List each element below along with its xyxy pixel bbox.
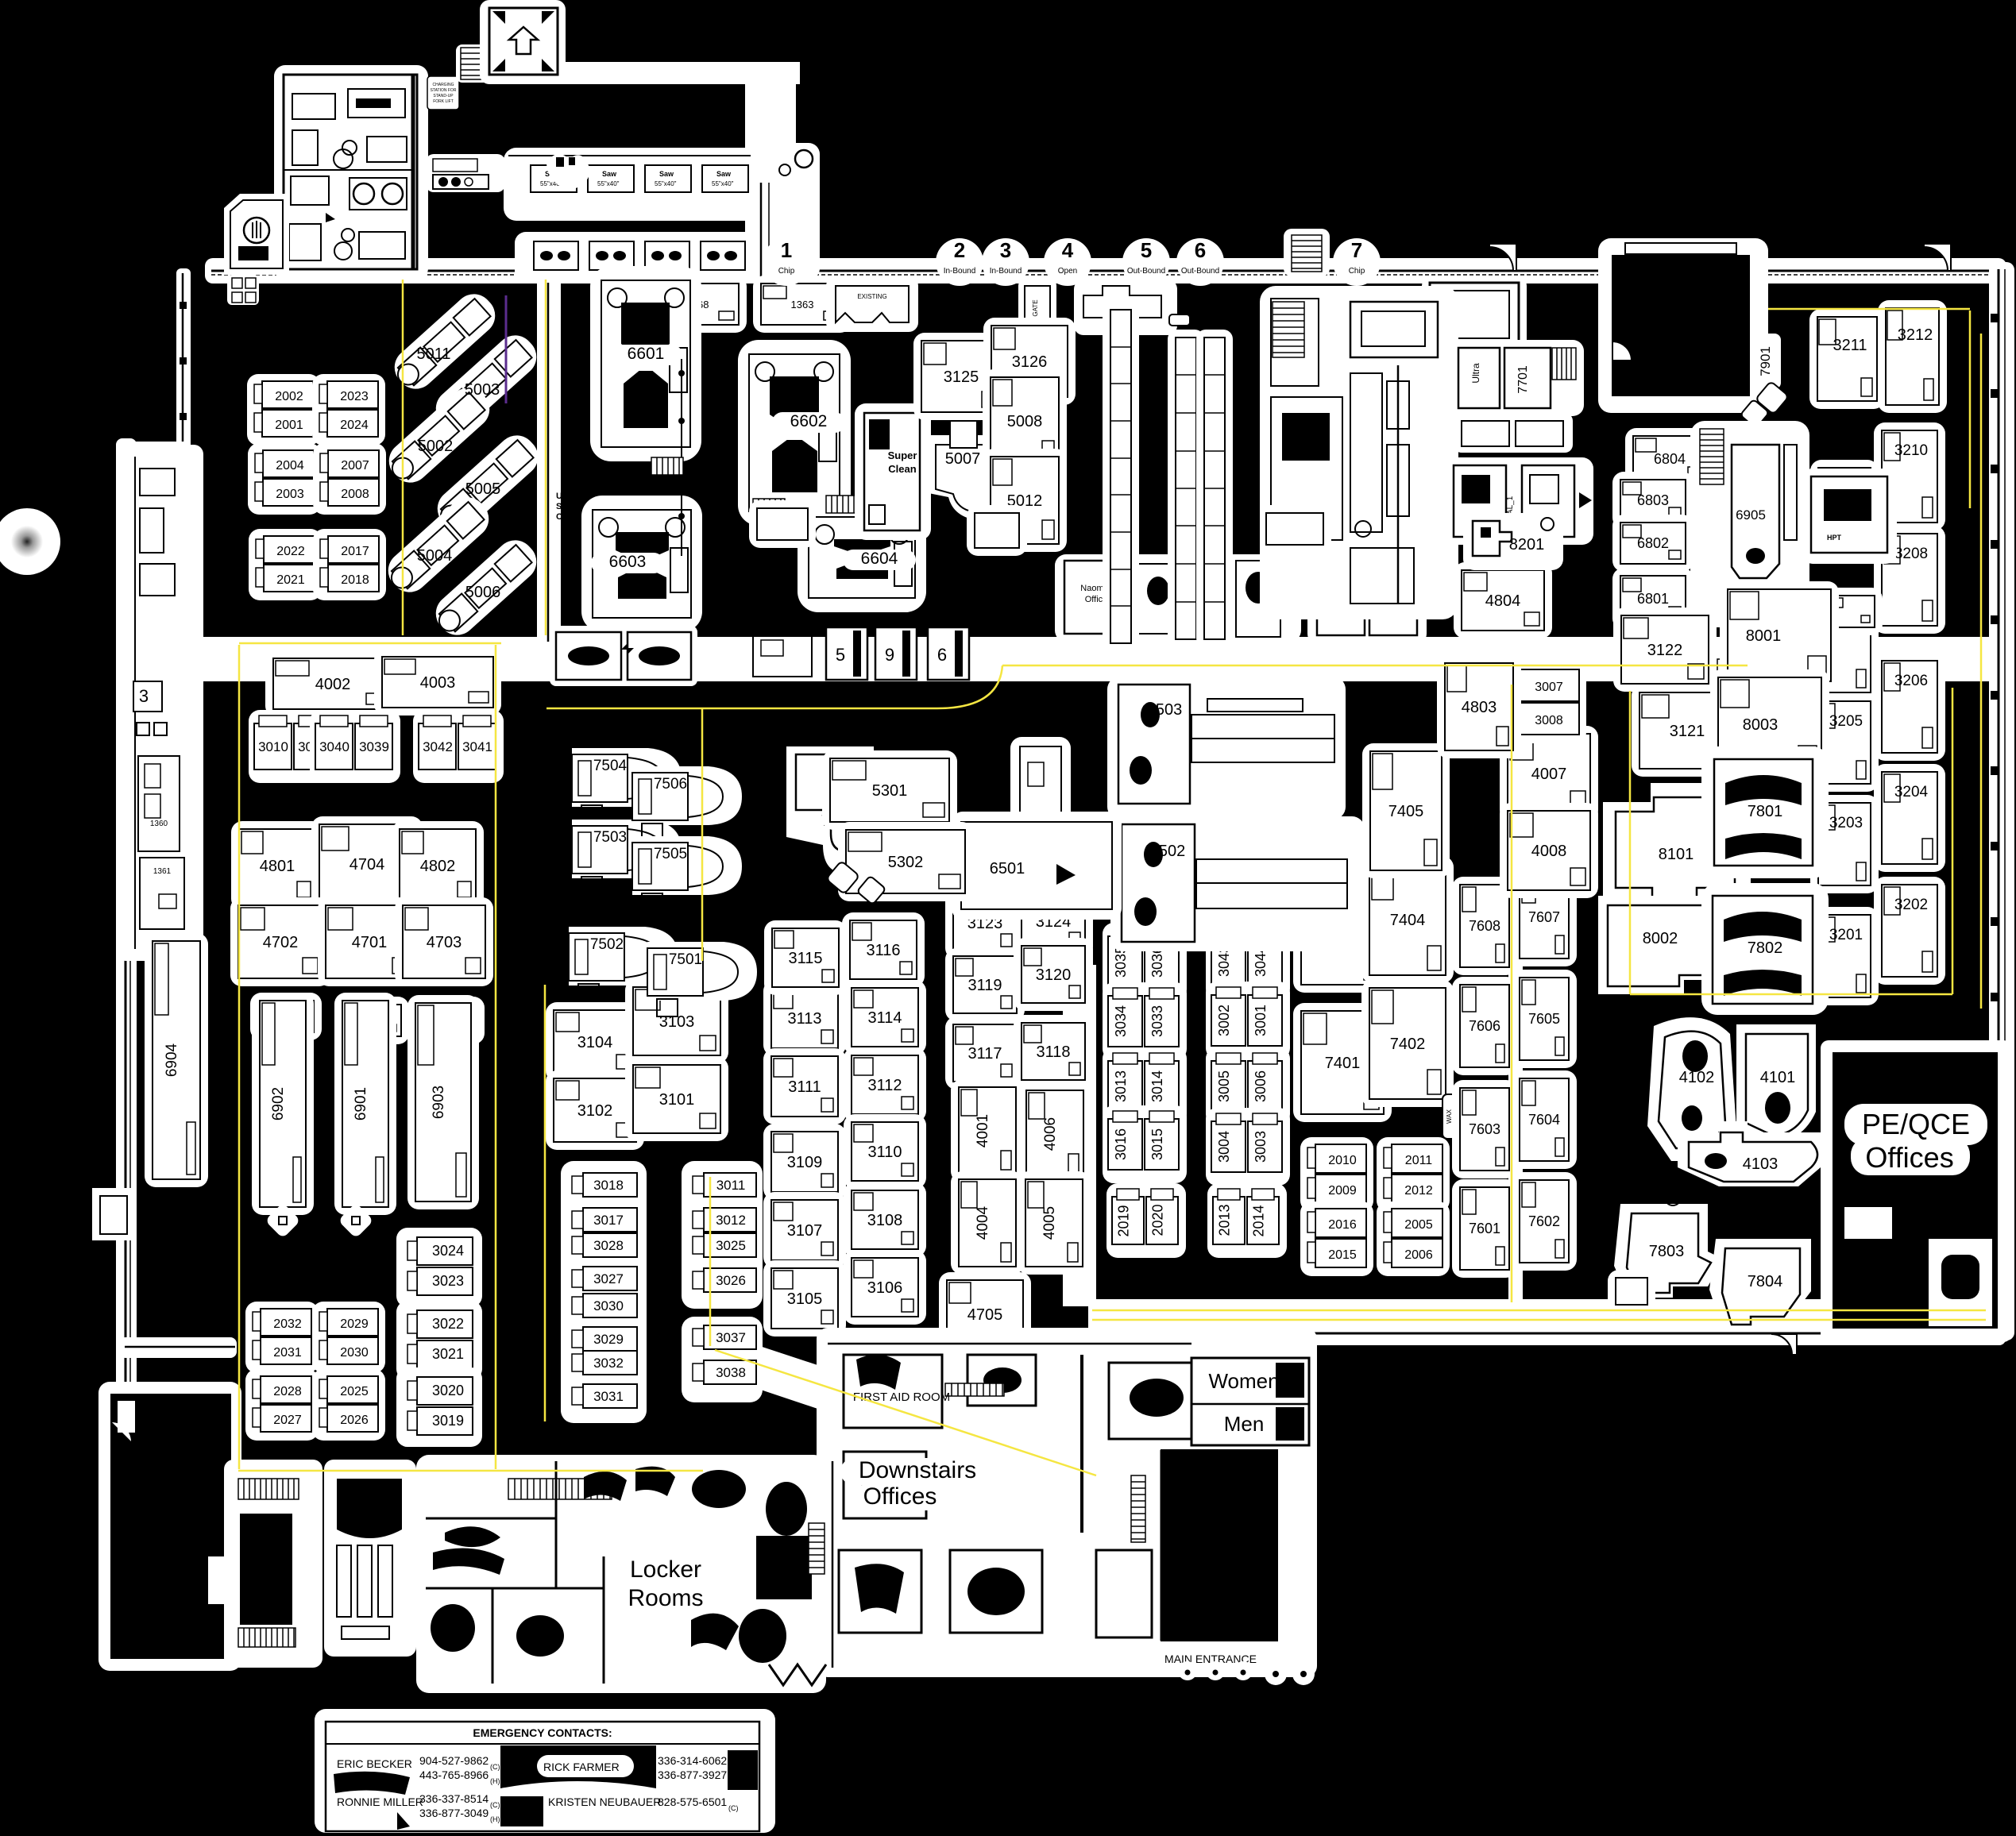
svg-text:3106: 3106 (867, 1279, 903, 1297)
svg-text:Men: Men (1224, 1412, 1265, 1436)
svg-text:3210: 3210 (1894, 442, 1928, 459)
svg-text:3030: 3030 (593, 1298, 624, 1313)
svg-text:6: 6 (1195, 238, 1206, 262)
svg-text:3204: 3204 (1894, 784, 1929, 800)
svg-text:2020: 2020 (1150, 1204, 1166, 1236)
svg-text:4002: 4002 (315, 676, 351, 693)
svg-text:4801: 4801 (260, 858, 295, 875)
svg-text:3029: 3029 (593, 1332, 624, 1347)
svg-text:3205: 3205 (1829, 713, 1863, 730)
svg-text:6602: 6602 (790, 412, 828, 430)
svg-text:2022: 2022 (276, 545, 305, 558)
svg-text:3026: 3026 (716, 1273, 746, 1288)
svg-text:6903: 6903 (431, 1086, 447, 1119)
svg-text:7601: 7601 (1469, 1221, 1500, 1236)
svg-text:336-877-3049: 336-877-3049 (419, 1807, 489, 1819)
svg-text:4008: 4008 (1531, 843, 1567, 860)
svg-text:2024: 2024 (340, 418, 369, 432)
svg-text:5003: 5003 (465, 381, 500, 399)
svg-text:STAND-UP: STAND-UP (433, 94, 454, 98)
svg-text:EXISTING: EXISTING (857, 293, 886, 300)
svg-text:3115: 3115 (788, 950, 822, 967)
svg-text:2023: 2023 (340, 390, 369, 403)
svg-text:PE/QCE: PE/QCE (1862, 1108, 1970, 1140)
svg-text:Saw: Saw (716, 170, 732, 178)
svg-text:3038: 3038 (716, 1365, 746, 1380)
svg-text:3015: 3015 (1149, 1128, 1165, 1160)
svg-text:7804: 7804 (1748, 1273, 1783, 1290)
svg-text:Chip: Chip (1349, 267, 1365, 276)
svg-text:6802: 6802 (1637, 535, 1669, 551)
svg-text:Saw: Saw (659, 170, 674, 178)
svg-text:55"x40": 55"x40" (597, 180, 620, 187)
svg-text:CAGE: CAGE (556, 512, 581, 522)
svg-text:7602: 7602 (1528, 1213, 1560, 1229)
svg-text:5011: 5011 (416, 345, 450, 363)
svg-text:3031: 3031 (593, 1389, 624, 1404)
svg-text:Downstairs: Downstairs (859, 1457, 976, 1483)
svg-text:7404: 7404 (1390, 912, 1426, 929)
svg-text:3112: 3112 (867, 1077, 902, 1094)
svg-text:Chip: Chip (778, 267, 795, 276)
svg-text:1360: 1360 (150, 820, 168, 828)
svg-text:(C): (C) (728, 1763, 739, 1771)
svg-text:WAX: WAX (1446, 1109, 1453, 1124)
svg-text:4705: 4705 (967, 1306, 1003, 1324)
svg-text:Saw: Saw (602, 170, 617, 178)
svg-text:6803: 6803 (1637, 492, 1669, 508)
svg-text:FORK LIFT: FORK LIFT (433, 99, 454, 104)
svg-text:(C): (C) (490, 1801, 500, 1809)
svg-text:5302: 5302 (888, 854, 924, 871)
svg-text:8201: 8201 (1509, 536, 1545, 553)
svg-text:7505: 7505 (654, 846, 687, 862)
svg-text:3040: 3040 (319, 739, 350, 754)
svg-text:2005: 2005 (1404, 1218, 1433, 1232)
svg-text:6904: 6904 (164, 1043, 180, 1077)
svg-text:6503: 6503 (1147, 701, 1183, 719)
svg-text:3023: 3023 (432, 1273, 464, 1289)
svg-text:7604: 7604 (1528, 1112, 1560, 1128)
svg-text:3121: 3121 (1670, 723, 1705, 740)
svg-text:5002: 5002 (418, 438, 454, 455)
svg-text:(H): (H) (490, 1815, 500, 1823)
svg-text:2029: 2029 (340, 1317, 369, 1331)
svg-text:4702: 4702 (263, 934, 299, 951)
svg-text:336-877-3927: 336-877-3927 (658, 1768, 727, 1781)
svg-text:3018: 3018 (593, 1178, 624, 1193)
svg-text:3: 3 (139, 686, 149, 706)
svg-text:Offices: Offices (1865, 1141, 1953, 1174)
svg-text:3202: 3202 (1894, 897, 1928, 913)
svg-text:KRISTEN NEUBAUER: KRISTEN NEUBAUER (548, 1795, 661, 1808)
svg-text:2008: 2008 (341, 488, 369, 501)
svg-text:443-765-8966: 443-765-8966 (419, 1768, 489, 1781)
svg-text:4803: 4803 (1462, 699, 1497, 716)
svg-text:3002: 3002 (1216, 1005, 1232, 1036)
svg-text:7401: 7401 (1325, 1055, 1361, 1072)
svg-text:In-Bound: In-Bound (990, 267, 1022, 276)
svg-text:3101: 3101 (659, 1091, 695, 1109)
svg-text:2019: 2019 (1116, 1205, 1132, 1236)
svg-text:3042: 3042 (423, 739, 453, 754)
svg-text:Out-Bound: Out-Bound (1181, 267, 1219, 276)
svg-text:3016: 3016 (1113, 1128, 1129, 1160)
svg-text:FIRST AID ROOM: FIRST AID ROOM (853, 1390, 950, 1404)
svg-text:HPT: HPT (1827, 534, 1842, 542)
svg-text:3006: 3006 (1253, 1070, 1269, 1102)
svg-text:7405: 7405 (1388, 803, 1424, 820)
svg-text:(H): (H) (490, 1777, 500, 1785)
svg-text:7901: 7901 (1758, 346, 1773, 376)
svg-text:3111: 3111 (788, 1078, 821, 1096)
svg-text:3102: 3102 (577, 1102, 613, 1120)
svg-text:5006: 5006 (465, 584, 501, 601)
svg-text:6604: 6604 (861, 550, 898, 568)
svg-text:6: 6 (937, 645, 947, 665)
svg-text:2027: 2027 (273, 1414, 302, 1427)
svg-text:3001: 3001 (1253, 1005, 1269, 1036)
svg-text:3105: 3105 (787, 1290, 823, 1308)
svg-text:2016: 2016 (1328, 1218, 1357, 1232)
svg-text:2014: 2014 (1251, 1205, 1267, 1236)
svg-text:2018: 2018 (341, 573, 369, 587)
svg-text:US TOOL: US TOOL (556, 492, 595, 501)
svg-text:5301: 5301 (872, 782, 908, 800)
svg-text:3212: 3212 (1898, 326, 1933, 344)
svg-text:4003: 4003 (420, 674, 456, 692)
svg-text:3003: 3003 (1253, 1131, 1269, 1163)
svg-text:Open: Open (1058, 267, 1077, 276)
svg-text:3033: 3033 (1149, 1005, 1165, 1037)
svg-text:3107: 3107 (787, 1222, 823, 1240)
svg-text:2: 2 (954, 238, 965, 262)
svg-text:3108: 3108 (867, 1212, 903, 1229)
svg-text:6603: 6603 (609, 553, 647, 571)
svg-text:3010: 3010 (258, 739, 288, 754)
svg-text:3126: 3126 (1012, 353, 1048, 371)
svg-text:3: 3 (1000, 238, 1011, 262)
svg-text:3206: 3206 (1894, 673, 1928, 689)
svg-text:3109: 3109 (787, 1154, 823, 1171)
svg-text:3020: 3020 (432, 1383, 464, 1398)
svg-text:2031: 2031 (273, 1346, 302, 1360)
svg-text:7607: 7607 (1528, 909, 1560, 925)
svg-text:3028: 3028 (593, 1238, 624, 1253)
svg-text:3208: 3208 (1894, 546, 1928, 562)
svg-text:3120: 3120 (1036, 966, 1072, 984)
svg-text:2012: 2012 (1404, 1184, 1433, 1198)
svg-text:2010: 2010 (1328, 1154, 1357, 1167)
svg-text:3027: 3027 (593, 1271, 624, 1286)
svg-text:8002: 8002 (1643, 930, 1678, 947)
svg-text:4005: 4005 (1041, 1206, 1058, 1240)
svg-text:3005: 3005 (1216, 1070, 1232, 1102)
svg-text:3114: 3114 (867, 1009, 902, 1027)
svg-text:3008: 3008 (1535, 714, 1563, 727)
svg-text:3022: 3022 (432, 1316, 464, 1332)
svg-text:2006: 2006 (1404, 1248, 1433, 1262)
svg-text:3034: 3034 (1113, 1005, 1129, 1037)
svg-text:In-Bound: In-Bound (944, 267, 976, 276)
svg-text:3032: 3032 (593, 1356, 624, 1371)
svg-text:2009: 2009 (1328, 1184, 1357, 1198)
svg-text:3021: 3021 (432, 1346, 464, 1362)
svg-text:1: 1 (781, 238, 792, 262)
svg-text:3116: 3116 (866, 942, 900, 959)
svg-text:3012: 3012 (716, 1213, 746, 1228)
svg-text:Clean: Clean (888, 463, 916, 475)
svg-text:4802: 4802 (420, 858, 456, 875)
svg-text:3125: 3125 (944, 368, 979, 386)
svg-text:3117: 3117 (967, 1045, 1002, 1063)
svg-text:3017: 3017 (593, 1213, 624, 1228)
svg-text:7603: 7603 (1469, 1121, 1500, 1137)
svg-text:2015: 2015 (1328, 1248, 1357, 1262)
svg-text:1363: 1363 (791, 299, 814, 310)
svg-text:6804: 6804 (1654, 451, 1686, 467)
svg-text:2017: 2017 (341, 545, 369, 558)
svg-text:4007: 4007 (1531, 766, 1567, 783)
svg-text:3110: 3110 (867, 1144, 902, 1161)
svg-text:5005: 5005 (465, 480, 501, 498)
svg-text:2021: 2021 (276, 573, 305, 587)
svg-text:7801: 7801 (1748, 803, 1783, 820)
svg-text:4006: 4006 (1042, 1117, 1059, 1151)
svg-text:55"x40": 55"x40" (712, 180, 734, 187)
svg-text:6902: 6902 (270, 1087, 287, 1120)
svg-text:5004: 5004 (417, 547, 453, 565)
svg-text:4703: 4703 (427, 934, 462, 951)
svg-text:4704: 4704 (350, 856, 385, 874)
svg-text:7605: 7605 (1528, 1011, 1560, 1027)
svg-text:7: 7 (1351, 238, 1362, 262)
svg-text:4101: 4101 (1760, 1069, 1796, 1086)
svg-text:Super: Super (888, 449, 917, 461)
svg-text:828-575-6501: 828-575-6501 (658, 1795, 727, 1808)
svg-text:904-527-9862: 904-527-9862 (419, 1754, 489, 1767)
svg-text:6601: 6601 (628, 345, 665, 363)
svg-text:3011: 3011 (716, 1178, 746, 1193)
svg-text:7506: 7506 (654, 776, 687, 793)
svg-text:ERIC BECKER: ERIC BECKER (337, 1757, 412, 1770)
svg-text:3039: 3039 (359, 739, 389, 754)
svg-text:7803: 7803 (1649, 1243, 1685, 1260)
svg-text:7606: 7606 (1469, 1018, 1500, 1034)
svg-text:2030: 2030 (340, 1346, 369, 1360)
svg-text:6901: 6901 (353, 1087, 369, 1120)
svg-text:3019: 3019 (432, 1413, 464, 1429)
svg-text:9: 9 (885, 645, 894, 665)
svg-text:2004: 2004 (276, 459, 304, 472)
svg-text:4103: 4103 (1743, 1155, 1778, 1173)
svg-text:(C): (C) (728, 1804, 739, 1812)
svg-text:CHARGING: CHARGING (433, 83, 454, 87)
svg-text:3104: 3104 (577, 1034, 613, 1051)
svg-text:EMERGENCY CONTACTS:: EMERGENCY CONTACTS: (473, 1726, 612, 1739)
svg-text:7503: 7503 (593, 829, 627, 846)
svg-text:Offices: Offices (863, 1483, 937, 1510)
svg-text:2028: 2028 (273, 1385, 302, 1398)
svg-text:Rooms: Rooms (628, 1585, 703, 1611)
svg-text:Locker: Locker (630, 1556, 701, 1583)
svg-text:3118: 3118 (1036, 1043, 1070, 1061)
svg-text:(C): (C) (490, 1763, 500, 1771)
svg-text:7802: 7802 (1748, 939, 1783, 957)
svg-text:2011: 2011 (1405, 1154, 1433, 1167)
svg-text:6502: 6502 (1150, 843, 1186, 860)
svg-text:7701: 7701 (1516, 365, 1530, 394)
svg-text:336-314-6062: 336-314-6062 (658, 1754, 727, 1767)
svg-text:2013: 2013 (1217, 1204, 1233, 1236)
svg-text:3211: 3211 (1833, 337, 1867, 354)
svg-text:5007: 5007 (945, 450, 981, 468)
svg-text:STATION FOR: STATION FOR (431, 88, 457, 93)
svg-text:55"x40": 55"x40" (655, 180, 677, 187)
svg-text:6501: 6501 (990, 860, 1025, 877)
svg-text:3122: 3122 (1647, 642, 1683, 659)
svg-text:2025: 2025 (340, 1385, 369, 1398)
svg-text:2001: 2001 (275, 418, 303, 432)
svg-text:4001: 4001 (975, 1114, 991, 1147)
svg-text:8101: 8101 (1659, 846, 1694, 863)
svg-text:3037: 3037 (716, 1330, 746, 1345)
svg-text:7501: 7501 (669, 951, 702, 968)
svg-text:3014: 3014 (1149, 1070, 1165, 1102)
svg-text:3013: 3013 (1113, 1070, 1129, 1102)
svg-text:3025: 3025 (716, 1238, 746, 1253)
svg-text:4804: 4804 (1485, 592, 1521, 610)
svg-text:2002: 2002 (275, 390, 303, 403)
svg-text:2007: 2007 (341, 459, 369, 472)
svg-text:4004: 4004 (975, 1205, 991, 1240)
svg-text:3119: 3119 (967, 977, 1002, 994)
svg-text:3004: 3004 (1216, 1131, 1232, 1163)
svg-text:3203: 3203 (1829, 815, 1863, 831)
svg-text:7504: 7504 (593, 758, 628, 774)
svg-text:8001: 8001 (1746, 627, 1782, 645)
svg-text:GATE: GATE (1032, 299, 1039, 316)
svg-text:8003: 8003 (1743, 716, 1778, 734)
svg-text:1361: 1361 (153, 867, 172, 876)
svg-text:5008: 5008 (1007, 413, 1043, 430)
svg-text:6905: 6905 (1736, 507, 1766, 523)
svg-text:7502: 7502 (590, 936, 624, 953)
svg-text:336-337-8514: 336-337-8514 (419, 1792, 489, 1805)
svg-text:3201: 3201 (1829, 927, 1863, 943)
svg-text:2003: 2003 (276, 488, 304, 501)
svg-text:7608: 7608 (1469, 918, 1500, 934)
svg-text:3113: 3113 (787, 1010, 821, 1028)
svg-text:(H): (H) (728, 1777, 739, 1785)
svg-text:2026: 2026 (340, 1414, 369, 1427)
svg-text:3007: 3007 (1535, 681, 1563, 694)
svg-text:4: 4 (1062, 238, 1074, 262)
svg-text:5: 5 (1141, 238, 1152, 262)
svg-text:6801: 6801 (1637, 591, 1669, 607)
svg-text:4102: 4102 (1679, 1069, 1715, 1086)
svg-text:3041: 3041 (462, 739, 492, 754)
svg-text:Ultra: Ultra (1470, 363, 1481, 384)
svg-text:4701: 4701 (352, 934, 388, 951)
svg-text:RICK FARMER: RICK FARMER (543, 1761, 620, 1773)
svg-text:2032: 2032 (273, 1317, 302, 1331)
svg-text:Out-Bound: Out-Bound (1127, 267, 1165, 276)
svg-text:RONNIE MILLER: RONNIE MILLER (337, 1795, 423, 1808)
svg-text:3024: 3024 (432, 1243, 464, 1259)
svg-text:7402: 7402 (1390, 1036, 1426, 1053)
svg-text:5: 5 (836, 645, 845, 665)
svg-text:Women: Women (1208, 1369, 1279, 1393)
